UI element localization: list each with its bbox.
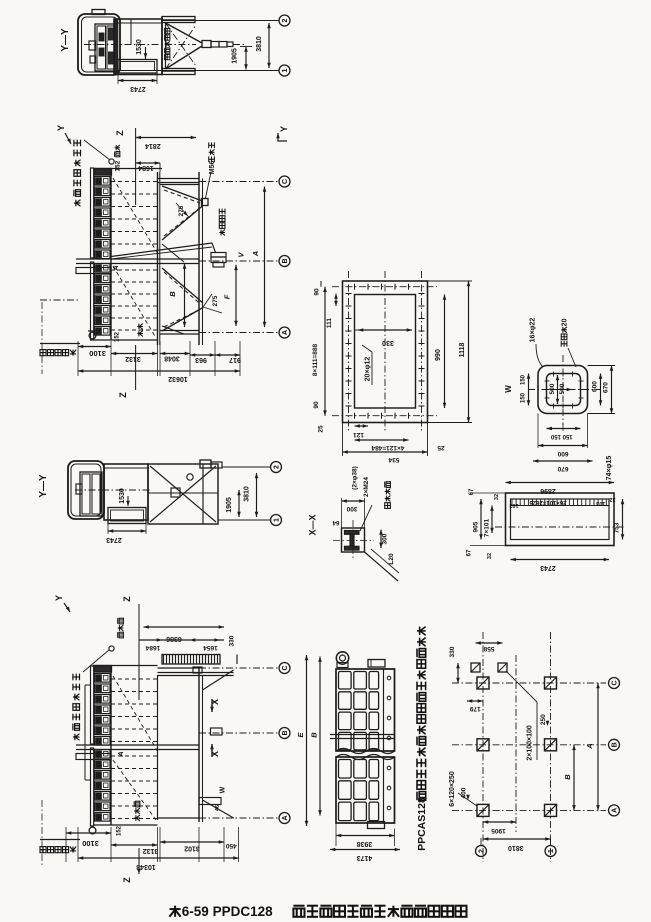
svg-text:1118: 1118	[459, 342, 466, 357]
svg-text:1905: 1905	[491, 827, 506, 834]
svg-text:670: 670	[557, 465, 568, 472]
svg-text:534: 534	[388, 456, 399, 463]
svg-text:2896: 2896	[540, 487, 556, 494]
svg-text:500: 500	[549, 383, 556, 394]
svg-text:500: 500	[559, 383, 566, 394]
svg-text:1905: 1905	[232, 48, 239, 64]
svg-text:A: A	[585, 743, 594, 749]
svg-text:B: B	[310, 732, 319, 738]
svg-text:Y—Y: Y—Y	[60, 28, 71, 52]
svg-text:1530: 1530	[119, 488, 126, 504]
svg-text:Y: Y	[279, 126, 289, 132]
svg-text:150 150: 150 150	[550, 433, 572, 439]
svg-text:Z: Z	[115, 130, 125, 136]
svg-text:26×101=2626: 26×101=2626	[529, 499, 567, 505]
svg-text:W: W	[219, 786, 226, 793]
svg-text:753: 753	[613, 522, 620, 533]
svg-text:103: 103	[509, 502, 518, 508]
svg-text:2: 2	[273, 465, 280, 469]
svg-text:3810: 3810	[508, 844, 524, 851]
svg-text:X—X: X—X	[308, 514, 318, 535]
svg-text:150: 150	[521, 374, 527, 385]
svg-text:150: 150	[521, 392, 527, 403]
svg-text:2: 2	[282, 18, 289, 22]
svg-text:990: 990	[435, 349, 442, 361]
svg-text:64: 64	[332, 519, 339, 525]
svg-text:111: 111	[326, 318, 333, 329]
svg-text:2743: 2743	[130, 85, 146, 92]
svg-text:(2×φ38): (2×φ38)	[352, 466, 359, 490]
svg-text:2814: 2814	[145, 142, 161, 149]
svg-text:67: 67	[469, 488, 475, 495]
svg-text:PPCAS128: PPCAS128	[416, 797, 428, 851]
svg-text:F: F	[223, 294, 232, 299]
svg-text:L20: L20	[388, 553, 395, 565]
svg-text:A: A	[111, 265, 120, 271]
svg-text:2: 2	[478, 849, 485, 853]
svg-text:152: 152	[115, 331, 121, 342]
svg-text:16×φ22: 16×φ22	[530, 318, 537, 343]
svg-text:W: W	[504, 385, 513, 393]
svg-text:B: B	[611, 742, 618, 747]
svg-text:2×M24: 2×M24	[363, 477, 370, 497]
svg-text:A: A	[611, 808, 618, 813]
svg-text:90: 90	[314, 288, 321, 296]
svg-text:3100: 3100	[89, 349, 106, 358]
svg-text:Y: Y	[56, 125, 66, 131]
svg-text:600: 600	[557, 450, 568, 457]
svg-text:3810: 3810	[244, 486, 251, 502]
svg-text:1: 1	[282, 68, 289, 72]
svg-text:275: 275	[212, 295, 219, 306]
svg-text:Z: Z	[118, 392, 128, 398]
svg-text:6×120×250: 6×120×250	[449, 771, 456, 807]
svg-text:25: 25	[318, 425, 325, 433]
svg-text:558: 558	[483, 645, 494, 652]
svg-text:152: 152	[115, 160, 122, 171]
svg-text:90: 90	[313, 401, 320, 409]
svg-text:3810: 3810	[256, 36, 263, 52]
svg-text:3102: 3102	[184, 845, 200, 852]
svg-text:3938: 3938	[357, 840, 373, 847]
svg-text:103: 103	[596, 500, 605, 506]
svg-text:179: 179	[469, 705, 480, 712]
svg-text:4173: 4173	[357, 854, 373, 861]
svg-text:1: 1	[548, 849, 555, 853]
svg-text:1684: 1684	[145, 644, 160, 651]
svg-text:32: 32	[609, 496, 615, 502]
svg-text:C: C	[282, 179, 289, 184]
svg-text:B: B	[282, 258, 289, 263]
svg-text:A: A	[282, 815, 289, 820]
svg-text:152: 152	[117, 825, 123, 836]
svg-text:Y—Y: Y—Y	[38, 474, 49, 498]
svg-text:1: 1	[273, 518, 280, 522]
svg-text:2743: 2743	[540, 564, 556, 571]
svg-text:A: A	[116, 751, 125, 757]
svg-text:3132: 3132	[125, 355, 141, 362]
svg-text:B: B	[282, 730, 289, 735]
svg-text:330: 330	[449, 646, 456, 657]
svg-text:Y: Y	[54, 595, 64, 601]
svg-text:25: 25	[437, 444, 445, 451]
svg-text:330: 330	[229, 635, 236, 646]
svg-text:2743: 2743	[106, 536, 122, 543]
svg-text:67: 67	[466, 549, 472, 556]
svg-text:6386: 6386	[166, 635, 182, 642]
svg-text:8×111=888: 8×111=888	[312, 344, 319, 377]
svg-text:A: A	[282, 330, 289, 335]
svg-text:1905: 1905	[226, 497, 233, 513]
svg-text:B: B	[563, 774, 572, 780]
svg-text:M56: M56	[209, 160, 216, 174]
svg-text:46: 46	[215, 805, 221, 811]
svg-text:905: 905	[473, 521, 480, 532]
svg-text:917: 917	[229, 356, 241, 363]
svg-text:20×φ12: 20×φ12	[365, 357, 372, 382]
svg-text:32: 32	[494, 494, 500, 500]
svg-text:300: 300	[346, 505, 357, 512]
svg-text:4×121=484: 4×121=484	[371, 444, 404, 451]
svg-text:3100: 3100	[82, 839, 99, 848]
svg-text:330: 330	[382, 339, 394, 346]
svg-text:10632: 10632	[168, 375, 188, 382]
svg-text:C: C	[282, 665, 289, 670]
svg-text:32: 32	[487, 553, 493, 559]
svg-text:250: 250	[540, 714, 547, 725]
svg-text:C: C	[611, 680, 618, 685]
svg-text:963: 963	[195, 356, 207, 363]
svg-text:1530: 1530	[136, 39, 143, 55]
svg-text:7×101: 7×101	[484, 518, 491, 537]
svg-text:Z: Z	[122, 877, 132, 883]
svg-text:3048: 3048	[164, 355, 180, 362]
svg-text:20: 20	[562, 318, 569, 326]
svg-text:A: A	[251, 251, 260, 257]
svg-text:1654: 1654	[203, 644, 218, 651]
svg-text:74×φ15: 74×φ15	[606, 456, 613, 481]
svg-text:3132: 3132	[143, 847, 159, 854]
svg-text:600: 600	[592, 381, 599, 392]
svg-text:670: 670	[603, 382, 610, 393]
svg-text:450: 450	[225, 842, 236, 849]
svg-text:1684: 1684	[138, 164, 154, 171]
svg-text:121: 121	[353, 431, 364, 438]
svg-text:2×100×100: 2×100×100	[526, 725, 533, 761]
svg-text:6-59 PPDC128: 6-59 PPDC128	[182, 904, 273, 919]
svg-text:B: B	[168, 291, 177, 297]
svg-text:Z: Z	[122, 596, 132, 602]
